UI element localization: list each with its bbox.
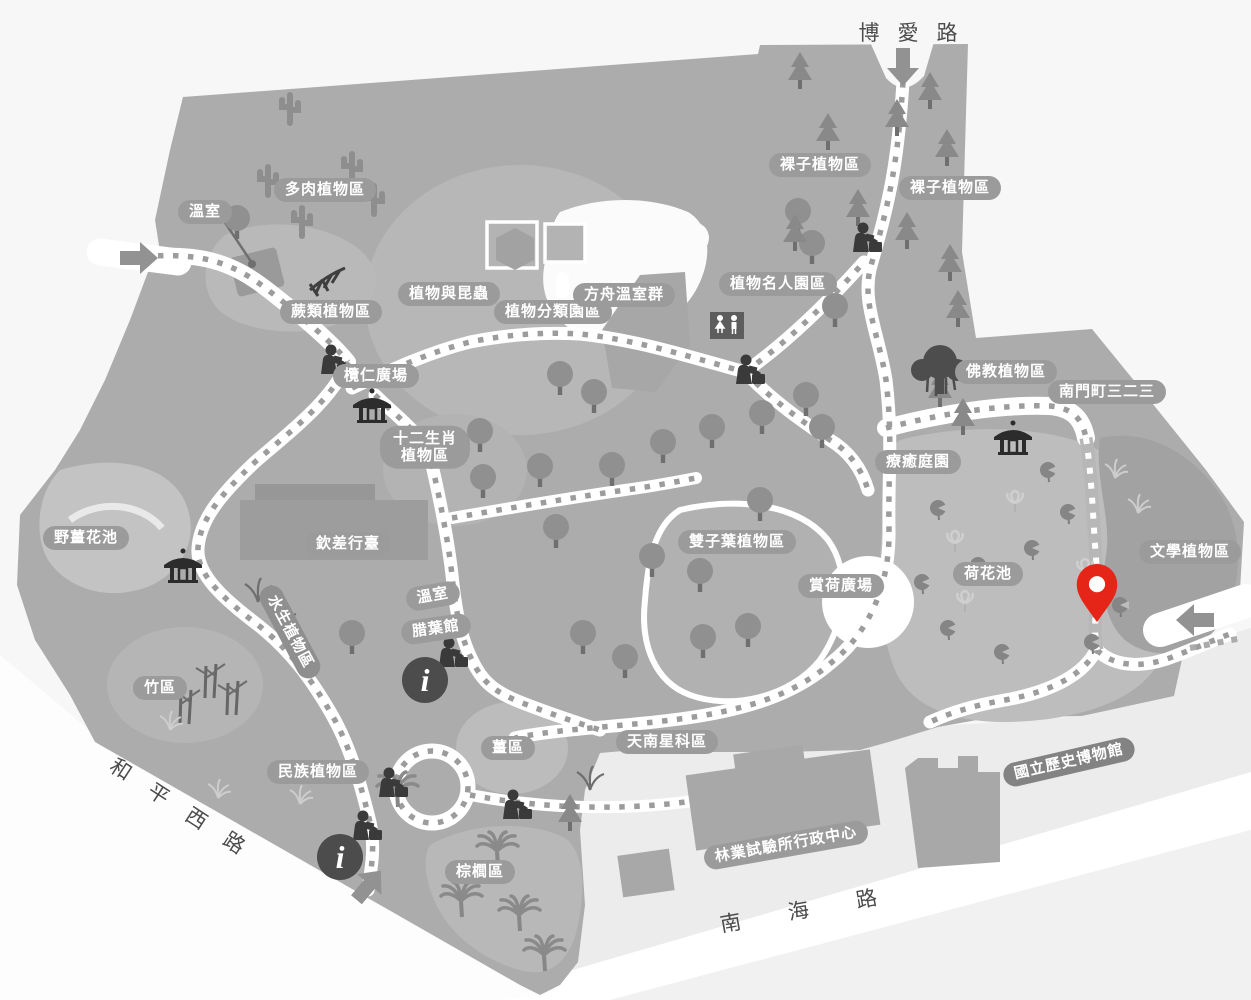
area-label-bamboo: 竹區 — [133, 676, 187, 700]
area-label-zodiac-line2: 植物區 — [393, 447, 457, 464]
area-label-qinchai-xingtai: 欽差行臺 — [305, 532, 391, 556]
area-label-fern: 蕨類植物區 — [280, 300, 382, 324]
info-icon: i — [402, 657, 448, 703]
area-label-healing-garden: 療癒庭園 — [875, 450, 961, 474]
area-label-buddhist: 佛教植物區 — [955, 360, 1057, 384]
area-label-gymnosperm-e: 裸子植物區 — [899, 176, 1001, 200]
area-label-ark-greenhouses: 方舟溫室群 — [573, 283, 675, 307]
area-label-lotus-pond: 荷花池 — [953, 562, 1023, 586]
area-label-succulent: 多肉植物區 — [274, 178, 376, 202]
ark-plaza-circle — [677, 222, 709, 254]
area-label-zodiac-line1: 十二生肖 — [393, 430, 457, 447]
area-label-nanmen323: 南門町三二三 — [1048, 380, 1166, 404]
area-label-plants-insects: 植物與昆蟲 — [398, 282, 500, 306]
area-label-dicot: 雙子葉植物區 — [678, 530, 796, 554]
restroom-icon — [710, 312, 744, 339]
area-label-palm: 棕櫚區 — [445, 860, 515, 884]
area-label-zodiac: 十二生肖 植物區 — [380, 426, 470, 469]
area-label-terminalia-plaza: 欖仁廣場 — [333, 364, 419, 388]
area-label-araceae: 天南星科區 — [616, 730, 718, 754]
botanical-garden-map: i i 博愛路 南海路 和平西路 溫室 多肉植物區 蕨類植物區 植物與昆蟲 植物… — [0, 0, 1251, 1000]
area-label-ginger-lily-pond: 野薑花池 — [43, 526, 129, 550]
info-glyph: i — [336, 839, 345, 875]
map-canvas: i i — [0, 0, 1251, 1000]
area-label-gymnosperm-w: 裸子植物區 — [769, 153, 871, 177]
small-building — [617, 849, 674, 898]
area-label-greenhouse-nw: 溫室 — [178, 200, 232, 224]
history-museum-building — [905, 756, 1000, 868]
area-label-ethnobotany: 民族植物區 — [267, 760, 369, 784]
area-label-lotus-plaza: 賞荷廣場 — [798, 574, 884, 598]
info-glyph: i — [421, 662, 430, 698]
greenhouse-building — [545, 224, 585, 262]
road-label-boai: 博愛路 — [859, 17, 976, 47]
info-icon: i — [317, 834, 363, 880]
small-structure — [556, 272, 569, 298]
qinchai-annex — [255, 484, 375, 502]
label-leader-dot — [248, 260, 256, 268]
lotus-plaza-circle — [822, 556, 914, 648]
area-label-ginger: 薑區 — [481, 736, 535, 760]
area-label-literary: 文學植物區 — [1139, 540, 1241, 564]
area-label-celebrities: 植物名人園區 — [719, 272, 837, 296]
